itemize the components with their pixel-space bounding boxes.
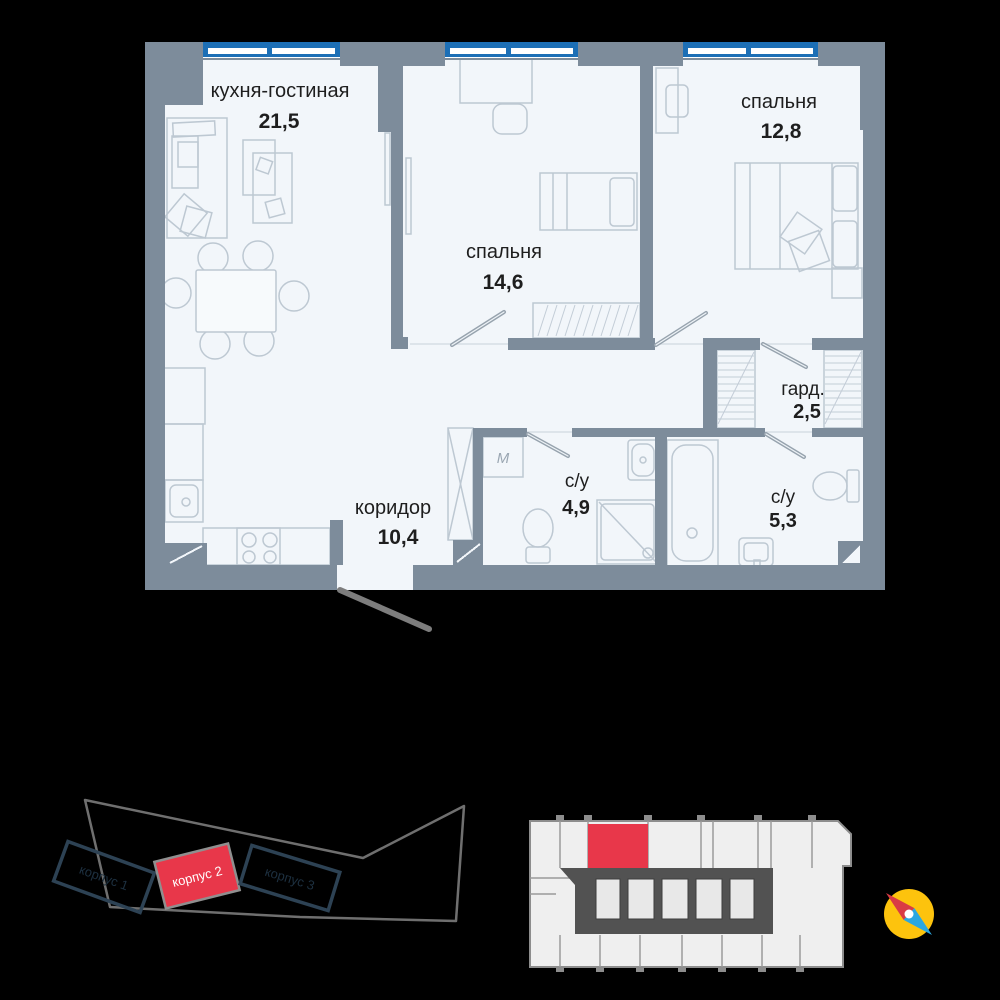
- building-marker-3[interactable]: корпус 3: [240, 845, 340, 910]
- room-area-bathroom-1: 4,9: [562, 497, 590, 519]
- apartment-plan-page: M: [0, 0, 1000, 1000]
- room-area-corridor: 10,4: [378, 526, 419, 549]
- room-label-bathroom-1: с/у: [565, 471, 590, 492]
- compass-icon: [884, 889, 934, 939]
- window-kitchen: [203, 42, 340, 60]
- room-area-wardrobe: 2,5: [793, 401, 821, 423]
- window-bedroom-1: [445, 42, 578, 60]
- core: [560, 868, 773, 934]
- room-label-kitchen-living: кухня-гостиная: [211, 80, 350, 102]
- building-marker-2-selected[interactable]: корпус 2: [154, 844, 239, 909]
- room-label-corridor: коридор: [355, 497, 431, 519]
- room-label-wardrobe: гард.: [781, 379, 825, 400]
- room-label-bedroom-2: спальня: [741, 91, 817, 113]
- room-area-bedroom-2: 12,8: [761, 120, 802, 143]
- floor-plan-canvas: M: [0, 0, 1000, 1000]
- site-plan: корпус 1 корпус 2 корпус 3: [54, 800, 464, 921]
- windows: [203, 42, 818, 60]
- room-area-bedroom-1: 14,6: [483, 271, 524, 294]
- room-area-bathroom-2: 5,3: [769, 510, 797, 532]
- washing-machine-label: M: [497, 450, 510, 467]
- floor-plan: M: [145, 42, 885, 629]
- building-marker-1[interactable]: корпус 1: [54, 842, 155, 913]
- room-label-bedroom-1: спальня: [466, 241, 542, 263]
- building-3-label: корпус 3: [263, 864, 316, 893]
- room-label-bathroom-2: с/у: [771, 487, 796, 508]
- window-bedroom-2: [683, 42, 818, 60]
- building-1-label: корпус 1: [77, 862, 130, 894]
- floor-plate: [530, 815, 851, 972]
- room-area-kitchen-living: 21,5: [259, 110, 300, 133]
- highlighted-unit: [588, 824, 648, 869]
